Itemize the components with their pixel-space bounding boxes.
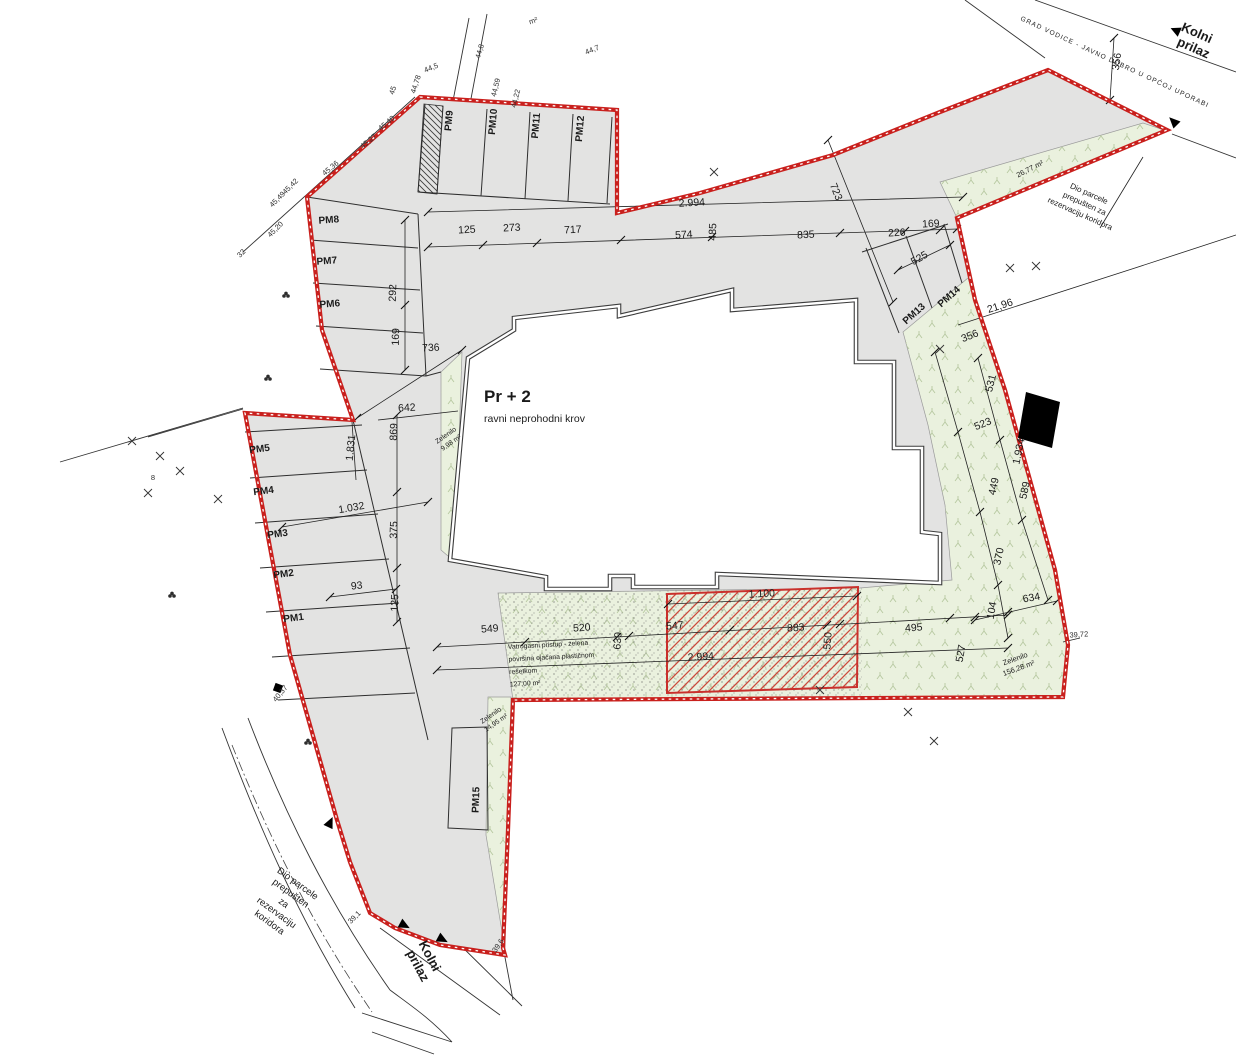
parking-space-label: PM15 (471, 786, 483, 813)
dimension-label: 375 (388, 521, 401, 539)
elevation-label: 39,1 (346, 909, 363, 926)
survey-mark (930, 737, 938, 745)
tree-symbol (168, 592, 176, 598)
dimension-label: 292 (387, 284, 400, 302)
elevation-label: 44,7 (584, 43, 601, 57)
dimension-label: 1.100 (748, 587, 775, 600)
dimension-label: 549 (481, 622, 499, 635)
parking-space-label: PM7 (316, 255, 338, 267)
dimension-label: 485 (707, 223, 720, 241)
dimension-label: 356 (1110, 52, 1124, 71)
survey-mark (156, 452, 164, 460)
elevation-label: 45 (387, 85, 398, 96)
survey-mark (214, 495, 222, 503)
elevation-label: 45,20 (265, 219, 285, 239)
parking-space-label: PM9 (443, 110, 456, 132)
dimension-label: 125 (389, 594, 402, 612)
dimension-label: 550 (821, 631, 834, 649)
dimension-label: 495 (905, 621, 923, 634)
survey-mark (904, 708, 912, 716)
dimension-label: 125 (458, 224, 476, 237)
parking-space-label: PM10 (487, 108, 500, 135)
corridor-note-top: Dio parcele prepušten za rezervaciju kor… (1046, 175, 1123, 232)
survey-mark (710, 168, 718, 176)
dimension-label: 273 (503, 222, 521, 235)
elevation-label: 45,42 (280, 176, 300, 196)
parking-space-label: PM12 (574, 115, 587, 142)
dimension-label: 226 (888, 227, 906, 240)
tree-symbol (264, 375, 272, 381)
elevation-label: 39,72 (1069, 629, 1088, 639)
dimension-label: 630 (611, 631, 624, 649)
elevation-label: 44,59 (489, 77, 502, 97)
site-plan-canvas: Pr + 2 ravni neprohodni krov Vatrogasni … (0, 0, 1236, 1055)
dimension-label: 717 (564, 224, 582, 237)
dimension-label: 835 (797, 229, 815, 242)
building-roof-label: ravni neprohodni krov (484, 413, 586, 425)
fire-access-line3: rešetkom (509, 667, 538, 675)
parking-space-label: PM11 (530, 112, 543, 139)
dimension-label: 169 (390, 328, 403, 346)
dimension-label: 642 (398, 402, 416, 415)
corridor-note-bottom: Dio parcele prepušten za rezervaciju kor… (247, 865, 321, 941)
dimension-label: 520 (573, 621, 591, 634)
elevation-label: 44,78 (408, 74, 422, 95)
elevation-label: 44,8 (473, 43, 486, 60)
dimension-label: 869 (388, 423, 401, 441)
survey-mark (1032, 262, 1040, 270)
elevation-label: 8 (151, 473, 155, 482)
survey-mark (144, 489, 152, 497)
parking-space-label: PM6 (319, 298, 341, 310)
dimension-label: 736 (422, 342, 440, 355)
survey-mark (128, 437, 136, 445)
elevation-label: 32 (235, 247, 247, 259)
dimension-label: 2.994 (687, 650, 714, 663)
elevation-label: 40,37 (271, 683, 290, 703)
dimension-label: 21,96 (986, 296, 1015, 316)
dimension-label: 169 (922, 218, 940, 231)
dimension-label: 883 (787, 621, 805, 634)
elevation-label: m² (528, 15, 540, 26)
site-plan-page: Pr + 2 ravni neprohodni krov Vatrogasni … (0, 0, 1236, 1055)
tree-symbol (282, 292, 290, 298)
dimension-label: 2.994 (678, 196, 705, 209)
survey-mark (176, 467, 184, 475)
direction-arrow (1166, 114, 1181, 129)
tree-symbol (304, 739, 312, 745)
building-floors-label: Pr + 2 (484, 387, 531, 406)
survey-mark (1006, 264, 1014, 272)
dimension-label: 93 (350, 579, 363, 592)
elevation-label: 44,5 (423, 61, 440, 75)
access-label-top: Kolni prilaz (1164, 15, 1219, 61)
dimension-label: 547 (666, 619, 684, 632)
parking-space-label: PM8 (318, 214, 340, 226)
dimension-label: 574 (675, 229, 693, 242)
